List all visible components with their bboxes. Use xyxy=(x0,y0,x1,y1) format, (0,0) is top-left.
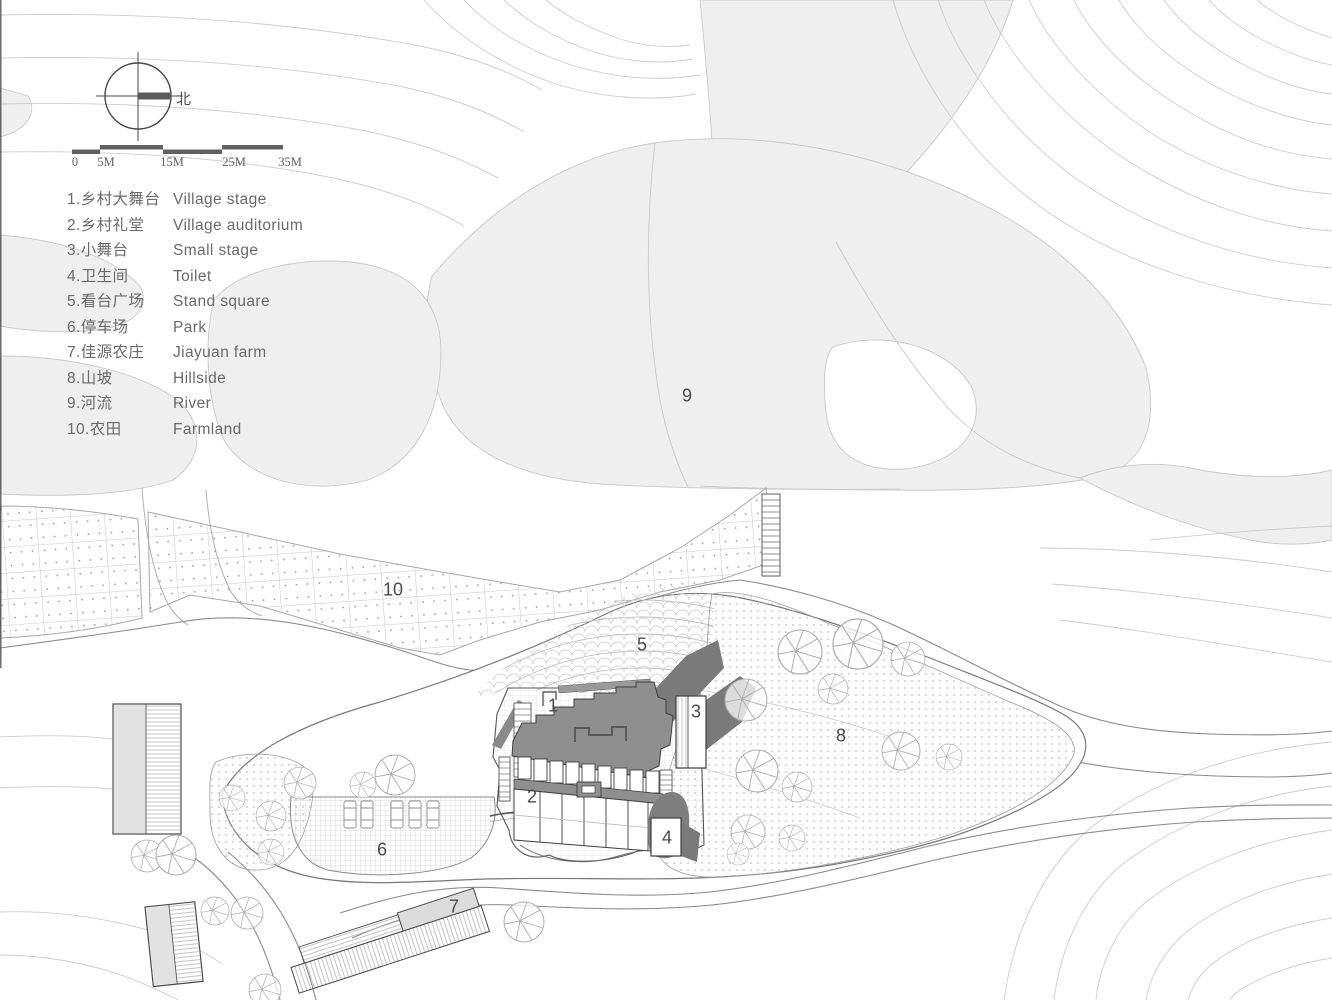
existing-building-southwest xyxy=(145,902,203,987)
site-plan: 北 0 5M 15M 25M 35M 1.乡村大舞台Village stage … xyxy=(0,0,1332,1000)
site-plan-drawing xyxy=(0,0,1332,1000)
existing-building-northwest xyxy=(113,704,181,834)
north-pointer xyxy=(138,93,171,100)
small-stage-building xyxy=(676,696,706,768)
river-wash-areas xyxy=(0,0,1332,544)
bridge xyxy=(762,494,780,576)
north-compass xyxy=(96,52,183,141)
jiayuan-farm-building xyxy=(285,888,489,994)
